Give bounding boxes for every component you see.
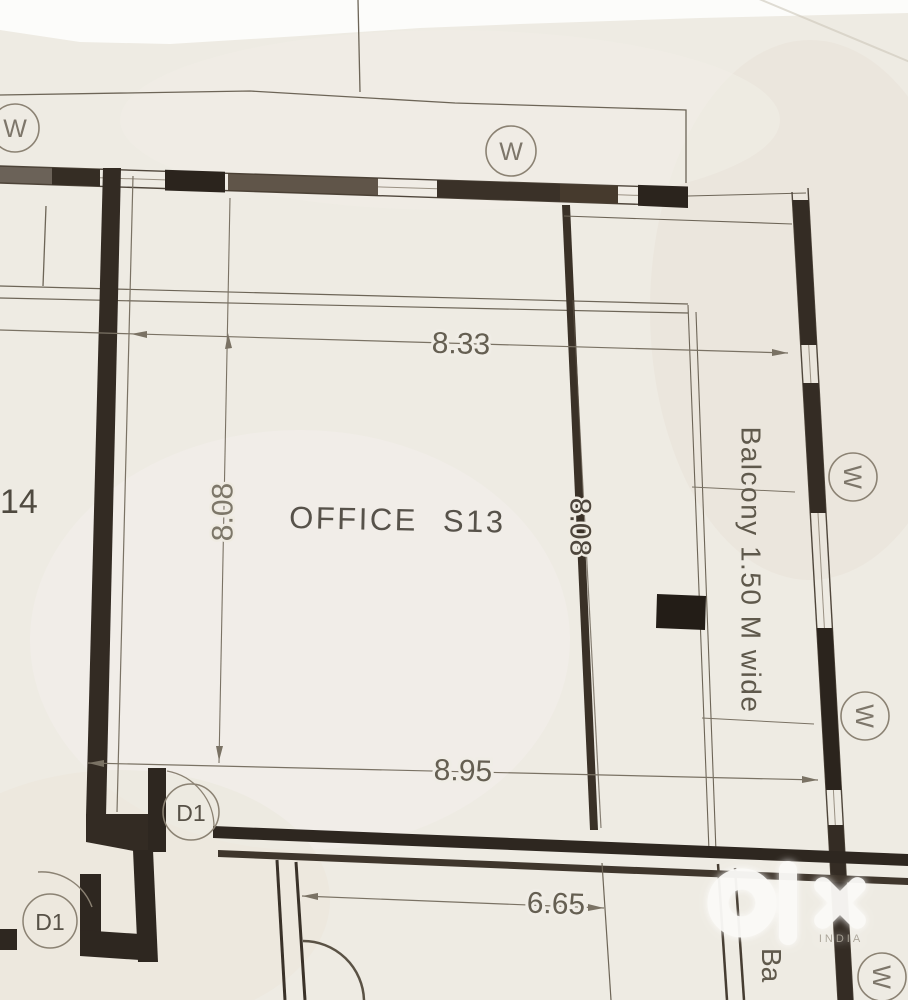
dimension-lower-label: 6.65 [526, 886, 586, 921]
dimension-bottom-label: 8.95 [433, 754, 492, 789]
window-label-2: W [499, 138, 523, 166]
dimension-top-label: 8.33 [431, 327, 490, 362]
window-label-4: W [850, 704, 878, 728]
window-label-1: W [3, 115, 27, 143]
floor-plan: D1 D1 8.33 8.08 8.08 8.95 6.65 OFFICE S1… [0, 0, 908, 1000]
dimension-left-label: 8.08 [207, 483, 240, 541]
window-label-3: W [838, 465, 866, 489]
door-label-1: D1 [176, 800, 205, 826]
door-label-2: D1 [35, 909, 64, 935]
column-block [656, 594, 706, 630]
window-label-5: W [867, 965, 895, 989]
olx-india-label: INDIA [819, 933, 863, 945]
room-label: OFFICE S13 [289, 500, 506, 540]
neighbor-room-label: 14 [0, 483, 38, 521]
balcony-label: Balcony 1.50 M wide [736, 427, 767, 714]
olx-l-icon [779, 861, 797, 945]
balcony-label-partial: Ba [756, 948, 787, 983]
floor-plan-photo: D1 D1 8.33 8.08 8.08 8.95 6.65 OFFICE S1… [0, 0, 908, 1000]
dimension-inner-label: 8.08 [564, 498, 597, 556]
